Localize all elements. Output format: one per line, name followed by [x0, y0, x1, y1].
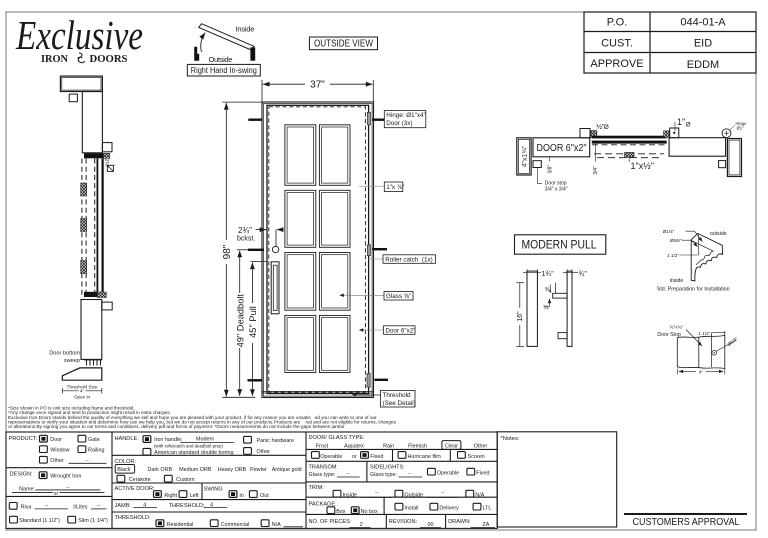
svg-text:Pewter: Pewter — [250, 467, 267, 473]
svg-text:4": 4" — [80, 389, 85, 394]
svg-text:Screen: Screen — [468, 454, 485, 460]
svg-text:In: In — [239, 493, 244, 499]
svg-text:inside: inside — [670, 278, 684, 284]
svg-text:SWING: SWING — [204, 487, 223, 493]
svg-text:Door (3x): Door (3x) — [386, 120, 412, 127]
svg-text:Ø1/4": Ø1/4" — [663, 229, 675, 234]
svg-text:Dark ORB: Dark ORB — [148, 467, 173, 473]
svg-text:45" Pull: 45" Pull — [248, 306, 258, 338]
svg-text:(See Detail): (See Detail) — [383, 400, 416, 407]
svg-text:PRODUCT:: PRODUCT: — [9, 436, 38, 442]
svg-text:Black: Black — [117, 467, 130, 473]
svg-text:Rain: Rain — [383, 444, 394, 450]
svg-text:Inside: Inside — [343, 493, 357, 499]
svg-text:REVISION:: REVISION: — [389, 519, 418, 525]
svg-text:Door bottom: Door bottom — [49, 351, 80, 357]
svg-text:--: -- — [97, 503, 101, 509]
svg-text:Other: Other — [257, 449, 271, 455]
svg-text:Install: Install — [404, 506, 418, 512]
svg-text:Gate: Gate — [88, 437, 100, 443]
svg-text:Threshold: Threshold — [383, 392, 411, 399]
svg-text:Delivery: Delivery — [439, 506, 459, 512]
svg-text:Door 6"x2": Door 6"x2" — [386, 328, 416, 335]
svg-text:Clear: Clear — [445, 444, 458, 450]
svg-text:Inside: Inside — [236, 24, 255, 33]
svg-text:Fixed: Fixed — [370, 454, 383, 460]
svg-text:Heavy ORB: Heavy ORB — [218, 467, 247, 473]
svg-text:98": 98" — [222, 244, 233, 259]
svg-text:HANDLE:: HANDLE: — [115, 436, 140, 442]
svg-text:¾": ¾" — [579, 271, 588, 278]
svg-text:Ø5/8": Ø5/8" — [670, 238, 682, 243]
svg-text:¾: ¾ — [543, 305, 549, 312]
svg-text:--: -- — [441, 490, 445, 496]
svg-text:Box: Box — [336, 509, 346, 515]
svg-text:EDDM: EDDM — [687, 59, 719, 71]
svg-text:¾"x¾": ¾"x¾" — [670, 325, 684, 331]
svg-text:Aquatex: Aquatex — [344, 444, 364, 450]
svg-text:1"x½": 1"x½" — [631, 161, 654, 171]
svg-text:Medium ORB: Medium ORB — [179, 467, 212, 473]
svg-text:THRESHOLD:: THRESHOLD: — [115, 515, 151, 521]
svg-text:Glass ⅝": Glass ⅝" — [386, 293, 411, 300]
svg-text:Outside: Outside — [404, 493, 423, 499]
svg-text:OUTSIDE VIEW: OUTSIDE VIEW — [314, 39, 373, 50]
svg-text:3/4" x 3/4": 3/4" x 3/4" — [545, 187, 568, 193]
svg-text:Name:: Name: — [19, 487, 35, 493]
svg-text:Antique gold: Antique gold — [272, 467, 302, 473]
svg-text:--: -- — [408, 470, 412, 476]
svg-text:Right: Right — [164, 493, 177, 499]
svg-text:Wrought Iron: Wrought Iron — [50, 474, 81, 480]
svg-text:American standard double borin: American standard double boring — [154, 450, 233, 456]
svg-text:APPROVE: APPROVE — [590, 58, 643, 70]
svg-text:(with rollercatch and deadbolt: (with rollercatch and deadbolt prep) — [154, 444, 223, 449]
svg-text:CUST.: CUST. — [601, 37, 633, 49]
svg-text:Commercial: Commercial — [221, 522, 250, 528]
svg-text:Frost: Frost — [316, 444, 329, 450]
svg-text:Out: Out — [260, 493, 269, 499]
svg-text:Cerakote: Cerakote — [129, 477, 151, 483]
svg-text:--: -- — [375, 490, 379, 496]
svg-text:Riva: Riva — [21, 504, 32, 510]
svg-text:Outside: Outside — [209, 55, 233, 64]
svg-text:--: -- — [347, 470, 351, 476]
svg-text:LTL: LTL — [483, 506, 492, 512]
svg-text:or: or — [352, 454, 357, 460]
svg-text:TRANSOM:: TRANSOM: — [309, 464, 339, 470]
svg-text:Right Hand In-swing: Right Hand In-swing — [191, 65, 257, 75]
svg-text:Std. Preparation for Installat: Std. Preparation for Installation — [657, 286, 730, 292]
svg-text:MODERN PULL: MODERN PULL — [522, 238, 597, 252]
svg-text:1 1/2": 1 1/2" — [698, 331, 710, 336]
svg-text:Residential: Residential — [167, 522, 194, 528]
svg-text:49" Deadbolt: 49" Deadbolt — [235, 294, 245, 348]
svg-text:Exclusive: Exclusive — [15, 12, 143, 58]
svg-text:CUSTOMERS APPROVAL: CUSTOMERS APPROVAL — [633, 517, 740, 528]
svg-text:Other: Other — [474, 444, 488, 450]
svg-text:DOORS: DOORS — [90, 54, 128, 65]
svg-text:Operable: Operable — [320, 454, 342, 460]
svg-text:DRAWN:: DRAWN: — [448, 519, 471, 525]
svg-text:3/8": 3/8" — [547, 165, 553, 174]
svg-text:#Lites: #Lites — [73, 504, 88, 510]
svg-text:Left: Left — [190, 493, 199, 499]
svg-text:Custom: Custom — [176, 477, 195, 483]
svg-text:sweep: sweep — [64, 358, 80, 364]
svg-text:044-01-A: 044-01-A — [680, 17, 726, 29]
svg-text:IRON: IRON — [41, 54, 69, 65]
svg-text:Hinge: Ø1"x4": Hinge: Ø1"x4" — [386, 112, 425, 119]
svg-text:P.O.: P.O. — [607, 17, 628, 29]
svg-text:THRESHOLD:: THRESHOLD: — [169, 503, 205, 509]
svg-text:Window: Window — [50, 447, 69, 453]
svg-text:Operable: Operable — [437, 471, 459, 477]
svg-text:Ø: Ø — [604, 124, 609, 131]
svg-text:Hurricane film: Hurricane film — [408, 454, 442, 460]
svg-text:or alterations.By signing you: or alterations.By signing you agree to o… — [8, 424, 345, 429]
svg-text:--: -- — [66, 484, 70, 490]
svg-text:Door: Door — [50, 437, 62, 443]
svg-text:Glass type:: Glass type: — [309, 472, 336, 478]
svg-text:2¾": 2¾" — [238, 226, 252, 235]
svg-text:16": 16" — [517, 311, 524, 322]
svg-text:3/4": 3/4" — [593, 166, 599, 175]
svg-text:ACTIVE DOOR:: ACTIVE DOOR: — [115, 486, 156, 492]
svg-text:SIDELIGHTS:: SIDELIGHTS: — [370, 464, 405, 470]
svg-text:COLOR:: COLOR: — [115, 459, 137, 465]
svg-text:No box: No box — [361, 509, 378, 515]
svg-text:EID: EID — [694, 37, 712, 49]
svg-text:Panic hardware: Panic hardware — [257, 438, 294, 444]
svg-text:Standard (1 1/2"): Standard (1 1/2") — [19, 518, 60, 524]
svg-text:Other: Other — [50, 458, 64, 464]
svg-text:or: or — [54, 491, 59, 497]
svg-text:*Notes:: *Notes: — [501, 436, 520, 442]
svg-text:Door Stop: Door Stop — [657, 332, 680, 338]
svg-text:Fixed: Fixed — [476, 471, 489, 477]
svg-text:Railing: Railing — [88, 447, 104, 453]
svg-text:--: -- — [85, 458, 89, 464]
svg-text:1": 1" — [677, 117, 685, 127]
svg-text:N/A: N/A — [272, 522, 281, 528]
svg-text:JAMB:: JAMB: — [115, 503, 132, 509]
svg-text:37": 37" — [310, 80, 325, 91]
svg-text:DOOR/ GLASS TYPE:: DOOR/ GLASS TYPE: — [309, 435, 366, 441]
svg-text:Iron handle;: Iron handle; — [154, 437, 183, 443]
svg-text:4": 4" — [699, 370, 704, 376]
svg-text:DESIGN:: DESIGN: — [10, 472, 33, 478]
svg-text:4"x1¾": 4"x1¾" — [521, 145, 528, 167]
svg-text:DOOR 6"x2": DOOR 6"x2" — [537, 143, 587, 154]
svg-text:Roller catch (1x): Roller catch (1x) — [385, 256, 433, 263]
svg-text:TRIM:: TRIM: — [309, 485, 325, 491]
svg-text:Flemish: Flemish — [408, 444, 427, 450]
svg-text:1¾": 1¾" — [542, 271, 555, 278]
svg-text:--: -- — [45, 503, 49, 509]
svg-text:bckst.: bckst. — [237, 235, 255, 242]
svg-text:⅜: ⅜ — [545, 287, 551, 294]
svg-text:N/A: N/A — [475, 493, 484, 499]
svg-text:Slim (1 1/4"): Slim (1 1/4") — [78, 518, 108, 524]
svg-text:Ø1": Ø1" — [737, 125, 745, 130]
svg-text:1"x ⅞": 1"x ⅞" — [386, 184, 404, 191]
svg-text:1 1/2": 1 1/2" — [667, 253, 679, 258]
svg-text:Open in: Open in — [74, 394, 91, 399]
svg-text:Ø: Ø — [686, 121, 691, 128]
svg-text:NO. OF PIECES:: NO. OF PIECES: — [309, 519, 352, 525]
svg-text:Glass type:: Glass type: — [370, 472, 397, 478]
svg-text:Modern: Modern — [196, 437, 214, 443]
svg-text:outside: outside — [710, 231, 727, 237]
